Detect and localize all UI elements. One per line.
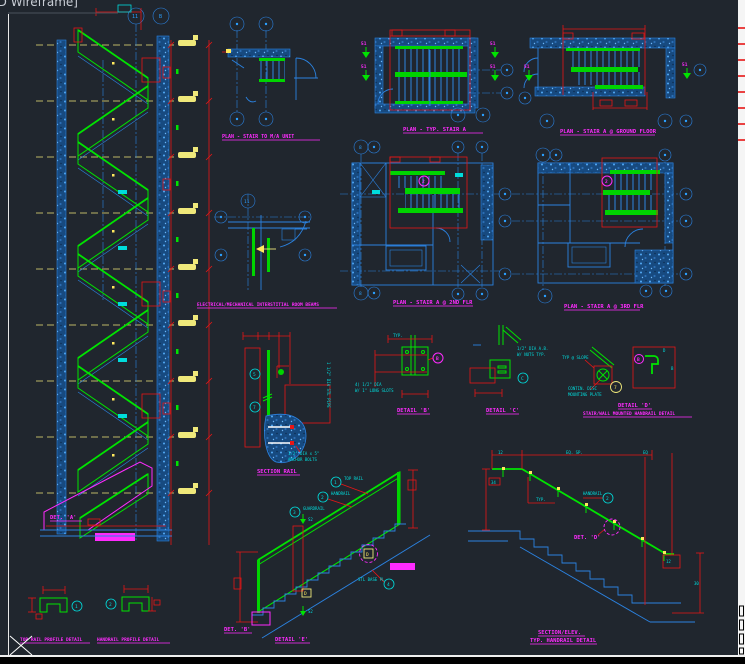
callout-2: 2 [422, 179, 425, 185]
stair-tread [259, 79, 285, 82]
callout-3: 3 [293, 510, 296, 516]
callout-2: 2 [606, 496, 609, 502]
concrete-wall-left [57, 40, 66, 534]
magenta-highlight-bar [390, 563, 415, 570]
arrow [256, 245, 264, 253]
svg-text:S2: S2 [308, 517, 313, 522]
detail-c-title: DETAIL 'C' [486, 408, 519, 414]
svg-text:51: 51 [361, 64, 367, 70]
top-rail-profile-detail: 1 TOP RAIL PROFILE DETAIL [20, 586, 90, 643]
door-swing [296, 58, 316, 78]
wall [228, 49, 290, 57]
handrail-bracket [645, 356, 658, 374]
detail-b: TYP. 4) 1/2" DIA W/ 1" LONG SLOTS B DETA… [355, 333, 443, 414]
plan-ground-title: PLAN - STAIR A @ GROUND FLOOR [560, 129, 657, 135]
plan-3rd-title: PLAN - STAIR A @ 3RD FLR [564, 304, 644, 310]
grid-bubble-label: B [159, 14, 162, 20]
beam-post [252, 228, 255, 276]
callout-2: 2 [321, 495, 324, 501]
detail-c: 1/2" DIA A.B. W/ NUTS TYP. C DETAIL 'C' [470, 325, 548, 414]
section-rail-detail: 5 7 1 1/2" DIA STL PIPE 1/2" DIA x 5" AN… [243, 332, 331, 475]
handrail [492, 469, 674, 554]
stair-flights [78, 30, 148, 538]
dim-b: EQ. SP. [566, 450, 583, 455]
svg-text:51: 51 [490, 64, 496, 70]
detail-e-ref: DET. 'B' [224, 627, 251, 633]
handrail-profile-detail: 2 HANDRAIL PROFILE DETAIL [97, 585, 170, 643]
note-2: W/ NUTS TYP. [517, 352, 546, 357]
drawing-canvas: 11 B [0, 0, 745, 664]
viewport-frame [0, 0, 745, 664]
note-slope: TYP @ SLOPE [562, 355, 589, 360]
note-typ: TYP. [393, 333, 403, 338]
plan-stair-a-ground: 51 51 PLAN - STAIR A @ GROUND FLOOR [519, 25, 706, 135]
handrail-elev-title2: TYP. HANDRAIL DETAIL [530, 638, 597, 644]
note-plate2: MOUNTING PLATE [568, 392, 602, 397]
callout-7: 7 [253, 405, 256, 411]
elev-mech-title: ELECTRICAL/MECHANICAL INTERSTITIAL ROOM … [197, 302, 319, 308]
callout-1: 1 [334, 480, 337, 486]
beam-post [267, 238, 270, 272]
note-typ: TYP. [536, 497, 546, 502]
detail-e-title: DETAIL 'E' [275, 637, 308, 643]
note-anchor2: ANCHOR BOLTS [288, 457, 317, 462]
flight-markers [112, 62, 115, 457]
plan-mia-title: PLAN - STAIR TO M/A UNIT [222, 134, 294, 140]
dim-end: 12 [666, 559, 671, 564]
plan-typ-stair-a: 51 51 51 51 PLAN - TYP. STAIR A [361, 30, 513, 133]
callout-7: 7 [614, 385, 617, 391]
svg-text:51: 51 [361, 41, 367, 47]
callout-handrail: HANDRAIL [583, 491, 603, 496]
callout-b: B [436, 356, 439, 362]
callout-2: 2 [109, 602, 112, 608]
level-marker-symbols [178, 35, 198, 494]
callout-handrail: HANDRAIL [331, 491, 351, 496]
callout-guardrail: GUARDRAIL [303, 506, 325, 511]
callout-base: STL BASE PL [358, 577, 385, 582]
plan-stair-to-mia-unit: PLAN - STAIR TO M/A UNIT [222, 17, 320, 140]
note-plate1: CONTIN. DISC [568, 386, 597, 391]
grid-bubble-label: 11 [244, 199, 250, 205]
stair-tread [259, 58, 285, 61]
detail-b-title: DETAIL 'B' [397, 408, 430, 414]
dim-a: 12 [498, 450, 503, 455]
callout-c: C [521, 376, 524, 382]
svg-text:D: D [304, 591, 307, 597]
callout-top-rail: TOP RAIL [344, 476, 364, 481]
note-2: W/ 1" LONG SLOTS [355, 388, 394, 393]
note-1: 4) 1/2" DIA [355, 382, 382, 387]
elevation-mech-beams: 11 ELECTRICAL/MECHANICAL INTERSTITIAL RO… [197, 194, 337, 308]
svg-text:B: B [671, 366, 674, 371]
stair-section-elevation: 11 B [36, 5, 212, 545]
plan-typ-title: PLAN - TYP. STAIR A [403, 127, 467, 133]
svg-text:51: 51 [524, 64, 530, 70]
right-scrollbar[interactable] [738, 0, 745, 655]
svg-text:S2: S2 [308, 609, 313, 614]
detail-d-title: DETAIL 'D' [618, 403, 651, 409]
callout-4: 4 [387, 582, 390, 588]
svg-text:8: 8 [359, 291, 362, 297]
detail-d-subtitle: STAIR/WALL MOUNTED HANDRAIL DETAIL [583, 411, 675, 417]
callout-b: B [637, 357, 640, 363]
stair-steps [468, 531, 681, 603]
callout-5: 5 [253, 372, 256, 378]
detail-e-guardrail: 1 TOP RAIL 2 HANDRAIL 3 GUARDRAIL 4 STL … [224, 470, 430, 643]
typ-handrail-elevation: 12 EQ. SP. EQ 34 TYP. 12 30 2 HANDRAIL D… [468, 450, 704, 644]
grid-bubble-label: 11 [132, 14, 138, 20]
note-1: 1/2" DIA A.B. [517, 346, 548, 351]
detail-d-ref: DET. 'D' [574, 535, 601, 541]
plan-stair-a-2nd: 2 8 8 PLAN - STAIR A @ 2ND FLR [340, 140, 511, 306]
detail-a-ref: DET. 'A' [50, 515, 77, 521]
detail-d: TYP @ SLOPE CONTIN. DISC MOUNTING PLATE … [562, 347, 692, 417]
svg-text:D: D [663, 348, 666, 353]
landing-tags [118, 190, 127, 418]
svg-text:51: 51 [490, 41, 496, 47]
svg-text:8: 8 [359, 145, 362, 151]
note-pipe: 1 1/2" DIA STL PIPE [326, 362, 331, 408]
dim-right: 30 [694, 581, 699, 586]
callout-1: 1 [75, 604, 78, 610]
concrete-wall-right [157, 36, 169, 541]
svg-text:51: 51 [682, 62, 688, 68]
plan-stair-a-3rd: 2 PLAN - STAIR A @ 3RD FLR [512, 148, 692, 310]
handrail-profile-title: HANDRAIL PROFILE DETAIL [97, 637, 160, 643]
handrail-elev-title1: SECTION/ELEV. [538, 630, 581, 636]
stair-steps [252, 524, 406, 622]
note-anchor1: 1/2" DIA x 5" [288, 451, 319, 456]
cad-model-space: 2D Wireframe] 11 B [0, 0, 745, 664]
detail-d-marker: D [366, 552, 369, 558]
section-rail-title: SECTION RAIL [257, 469, 297, 475]
dim-height: 34 [491, 480, 496, 485]
dim-c: EQ [643, 450, 648, 455]
magenta-highlight-bar [95, 533, 135, 541]
callout-2: 2 [605, 179, 608, 185]
plan-2nd-title: PLAN - STAIR A @ 2ND FLR [393, 300, 473, 306]
